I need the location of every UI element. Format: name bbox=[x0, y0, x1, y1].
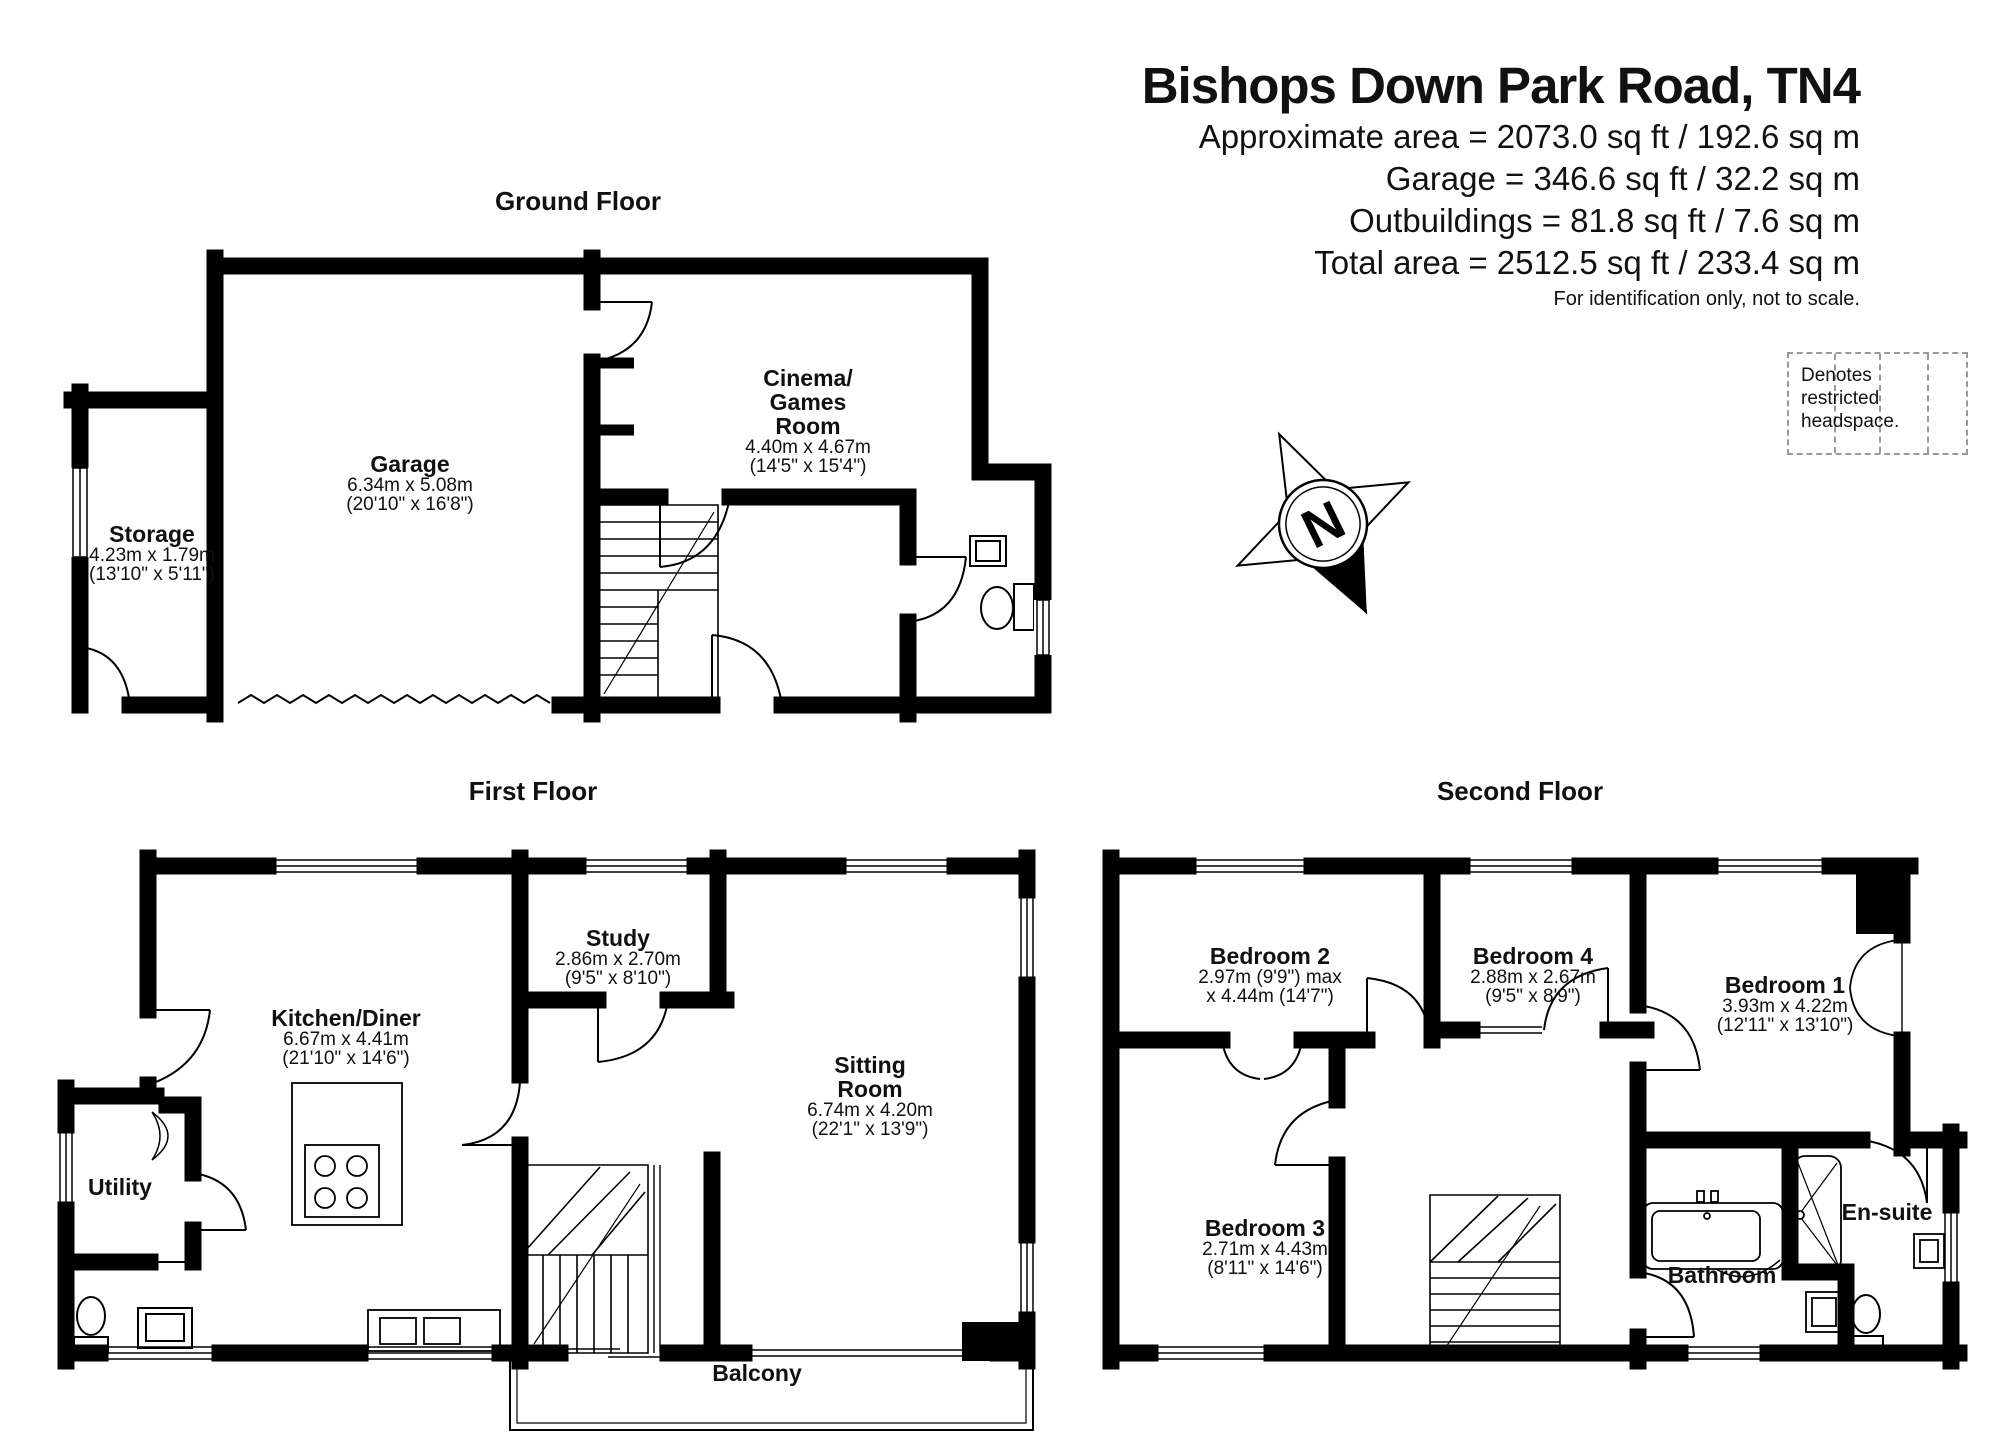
toilet-icon bbox=[74, 1297, 108, 1352]
shower-icon bbox=[1793, 1156, 1841, 1272]
room-label-storage: Storage 4.23m x 1.79m (13'10" x 5'11") bbox=[89, 522, 215, 584]
total-area: Total area = 2512.5 sq ft / 233.4 sq m bbox=[1142, 242, 1860, 284]
wall-corner-block bbox=[962, 1322, 1035, 1361]
room-label-cinema-games-room: Cinema/ Games Room 4.40m x 4.67m (14'5" … bbox=[745, 366, 871, 476]
sink-icon bbox=[138, 1308, 192, 1348]
room-label-bedroom-4: Bedroom 4 2.88m x 2.67m (9'5" x 8'9") bbox=[1470, 944, 1596, 1006]
ground-floor-title: Ground Floor bbox=[495, 186, 661, 217]
room-label-study: Study 2.86m x 2.70m (9'5" x 8'10") bbox=[555, 926, 681, 988]
kitchen-sink-icon bbox=[368, 1310, 500, 1351]
room-name: Sitting bbox=[807, 1053, 933, 1077]
room-label-bathroom: Bathroom bbox=[1668, 1263, 1777, 1287]
wall-corner-block bbox=[1856, 858, 1910, 934]
toilet-icon bbox=[981, 584, 1034, 630]
room-name: Games bbox=[745, 390, 871, 414]
first-floor-title: First Floor bbox=[469, 776, 598, 807]
room-dims-metric: 3.93m x 4.22m bbox=[1717, 997, 1854, 1016]
room-dims-imperial: (9'5" x 8'10") bbox=[555, 969, 681, 988]
room-dims-imperial: (20'10" x 16'8") bbox=[346, 495, 473, 514]
room-name: Bedroom 2 bbox=[1198, 944, 1341, 968]
room-name: Cinema/ bbox=[745, 366, 871, 390]
outbuildings-area: Outbuildings = 81.8 sq ft / 7.6 sq m bbox=[1142, 200, 1860, 242]
room-label-utility: Utility bbox=[88, 1175, 152, 1199]
room-dims-metric: 2.88m x 2.67m bbox=[1470, 968, 1596, 987]
room-dims-imperial: (13'10" x 5'11") bbox=[89, 565, 215, 584]
approximate-area: Approximate area = 2073.0 sq ft / 192.6 … bbox=[1142, 116, 1860, 158]
room-name: Bedroom 4 bbox=[1470, 944, 1596, 968]
room-label-garage: Garage 6.34m x 5.08m (20'10" x 16'8") bbox=[346, 452, 473, 514]
room-dims-imperial: x 4.44m (14'7") bbox=[1198, 987, 1341, 1006]
room-dims-imperial: (8'11" x 14'6") bbox=[1202, 1259, 1328, 1278]
room-label-balcony: Balcony bbox=[712, 1361, 801, 1385]
sink-icon bbox=[1914, 1234, 1944, 1268]
room-dims-metric: 6.74m x 4.20m bbox=[807, 1101, 933, 1120]
second-floor-title: Second Floor bbox=[1437, 776, 1603, 807]
kitchen-island bbox=[292, 1083, 402, 1225]
room-dims-metric: 6.67m x 4.41m bbox=[271, 1030, 421, 1049]
sink-icon bbox=[970, 536, 1006, 566]
room-name: Balcony bbox=[712, 1361, 801, 1385]
restricted-headspace-legend: Denotes restricted headspace. bbox=[1787, 352, 1968, 455]
room-dims-imperial: (22'1" x 13'9") bbox=[807, 1120, 933, 1139]
stair-rail bbox=[1472, 1027, 1542, 1033]
room-dims-metric: 2.97m (9'9") max bbox=[1198, 968, 1341, 987]
garage-door-zigzag bbox=[238, 695, 550, 703]
stairs bbox=[1430, 1195, 1560, 1353]
room-name: Bedroom 1 bbox=[1717, 973, 1854, 997]
ground-floor-plan bbox=[71, 258, 1052, 714]
room-name: Kitchen/Diner bbox=[271, 1006, 421, 1030]
room-name: Garage bbox=[346, 452, 473, 476]
room-name: Bedroom 3 bbox=[1202, 1216, 1328, 1240]
room-name: Study bbox=[555, 926, 681, 950]
wall bbox=[1111, 858, 1959, 1361]
room-dims-imperial: (14'5" x 15'4") bbox=[745, 457, 871, 476]
room-name: Utility bbox=[88, 1175, 152, 1199]
room-dims-metric: 4.40m x 4.67m bbox=[745, 438, 871, 457]
stairs bbox=[526, 1165, 660, 1353]
sink-icon bbox=[1806, 1292, 1848, 1332]
closet-doors bbox=[152, 1112, 168, 1160]
room-name: Bathroom bbox=[1668, 1263, 1777, 1287]
room-label-kitchen-diner: Kitchen/Diner 6.67m x 4.41m (21'10" x 14… bbox=[271, 1006, 421, 1068]
floorplan-page: Bishops Down Park Road, TN4 Approximate … bbox=[0, 0, 2000, 1454]
closet-doors bbox=[1850, 935, 1902, 1040]
room-name: Storage bbox=[89, 522, 215, 546]
second-floor-plan bbox=[1111, 858, 1959, 1361]
room-name: En-suite bbox=[1842, 1200, 1933, 1224]
first-floor-plan bbox=[60, 858, 1035, 1430]
legend-label: Denotes restricted headspace. bbox=[1789, 354, 1951, 433]
windows bbox=[1150, 860, 1957, 1359]
room-dims-metric: 2.71m x 4.43m bbox=[1202, 1240, 1328, 1259]
room-dims-metric: 2.86m x 2.70m bbox=[555, 950, 681, 969]
room-dims-imperial: (9'5" x 8'9") bbox=[1470, 987, 1596, 1006]
page-title: Bishops Down Park Road, TN4 bbox=[1142, 56, 1860, 116]
room-dims-metric: 4.23m x 1.79m bbox=[89, 546, 215, 565]
room-label-en-suite: En-suite bbox=[1842, 1200, 1933, 1224]
header: Bishops Down Park Road, TN4 Approximate … bbox=[1142, 56, 1860, 314]
hob-icon bbox=[305, 1145, 379, 1217]
room-dims-imperial: (21'10" x 14'6") bbox=[271, 1049, 421, 1068]
garage-area: Garage = 346.6 sq ft / 32.2 sq m bbox=[1142, 158, 1860, 200]
compass-north-icon: N bbox=[1203, 404, 1443, 644]
wall bbox=[72, 258, 1043, 714]
room-dims-metric: 6.34m x 5.08m bbox=[346, 476, 473, 495]
room-dims-imperial: (12'11" x 13'10") bbox=[1717, 1016, 1854, 1035]
room-label-bedroom-1: Bedroom 1 3.93m x 4.22m (12'11" x 13'10"… bbox=[1717, 973, 1854, 1035]
room-name: Room bbox=[745, 414, 871, 438]
room-label-bedroom-3: Bedroom 3 2.71m x 4.43m (8'11" x 14'6") bbox=[1202, 1216, 1328, 1278]
room-label-sitting-room: Sitting Room 6.74m x 4.20m (22'1" x 13'9… bbox=[807, 1053, 933, 1139]
disclaimer: For identification only, not to scale. bbox=[1142, 284, 1860, 314]
room-label-bedroom-2: Bedroom 2 2.97m (9'9") max x 4.44m (14'7… bbox=[1198, 944, 1341, 1006]
stairs bbox=[598, 505, 718, 700]
room-name: Room bbox=[807, 1077, 933, 1101]
